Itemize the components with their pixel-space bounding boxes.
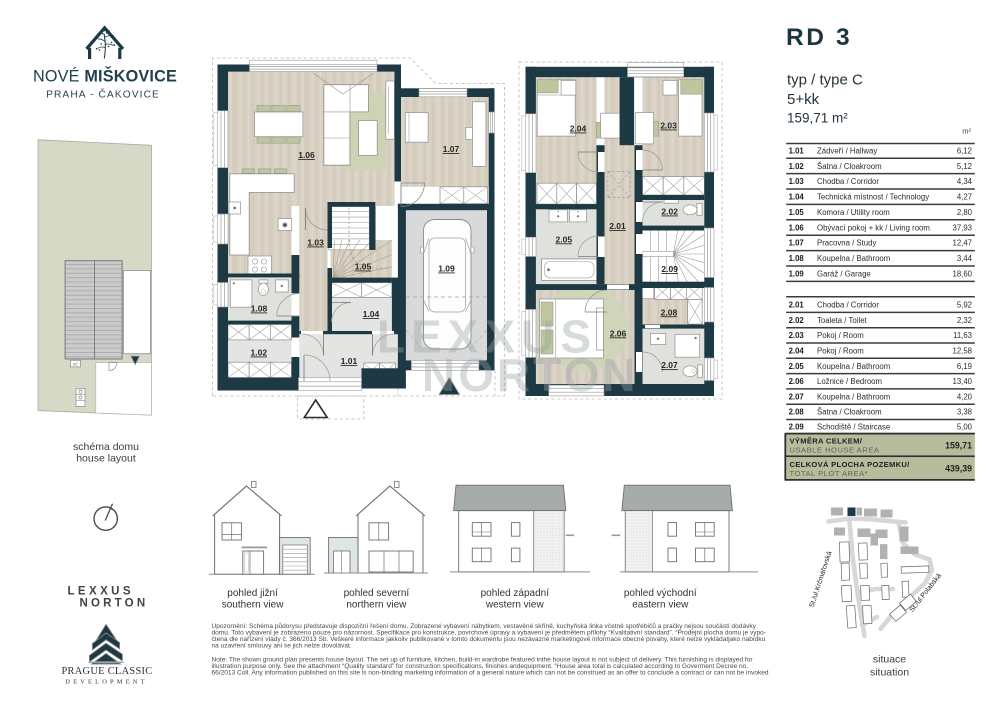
svg-text:typ / type C: typ / type C	[787, 72, 863, 89]
svg-text:Technická místnost / Technolog: Technická místnost / Technology	[817, 193, 929, 202]
svg-text:Toaleta / Toilet: Toaleta / Toilet	[817, 316, 868, 325]
svg-text:2,80: 2,80	[957, 208, 973, 217]
svg-text:Koupelna / Bathroom: Koupelna / Bathroom	[817, 362, 890, 371]
svg-text:5,00: 5,00	[957, 422, 973, 431]
svg-text:5,92: 5,92	[957, 300, 972, 309]
svg-text:66/2013 Coll. Any information: 66/2013 Coll. Any information published …	[212, 669, 769, 676]
svg-text:eastern view: eastern view	[632, 600, 689, 611]
svg-text:NORTON: NORTON	[422, 349, 639, 401]
svg-text:Garáž / Garage: Garáž / Garage	[817, 270, 871, 279]
svg-text:18,60: 18,60	[952, 270, 972, 279]
svg-text:4,34: 4,34	[957, 177, 973, 186]
svg-text:2,32: 2,32	[957, 316, 972, 325]
svg-text:2.04: 2.04	[789, 346, 805, 355]
svg-text:Šatna / Cloakroom: Šatna / Cloakroom	[817, 162, 882, 171]
svg-text:2.02: 2.02	[789, 316, 805, 325]
svg-text:3,38: 3,38	[957, 408, 972, 417]
svg-text:pohled jižní: pohled jižní	[227, 588, 278, 599]
svg-text:pohled severní: pohled severní	[344, 588, 410, 599]
svg-text:USABLE HOUSE AREA: USABLE HOUSE AREA	[790, 446, 880, 455]
svg-text:2.03: 2.03	[660, 121, 677, 131]
svg-text:159,71: 159,71	[945, 441, 972, 451]
svg-text:CELKOVÁ PLOCHA POZEMKU/: CELKOVÁ PLOCHA POZEMKU/	[790, 460, 911, 469]
svg-text:5,12: 5,12	[957, 162, 972, 171]
svg-text:Pokoj / Room: Pokoj / Room	[817, 346, 864, 355]
svg-text:Obývací pokoj + kk / Living ro: Obývací pokoj + kk / Living room	[817, 223, 930, 232]
svg-text:2.01: 2.01	[609, 221, 626, 231]
svg-text:1.02: 1.02	[789, 162, 805, 171]
svg-text:4,20: 4,20	[957, 392, 973, 401]
svg-text:TOTAL PLOT AREA*: TOTAL PLOT AREA*	[790, 469, 869, 478]
svg-text:2.01: 2.01	[789, 300, 805, 309]
svg-text:northern view: northern view	[346, 600, 407, 611]
svg-text:1.02: 1.02	[251, 348, 268, 358]
svg-text:DEVELOPMENT: DEVELOPMENT	[65, 679, 147, 686]
svg-text:2.07: 2.07	[789, 392, 804, 401]
svg-text:Chodba / Corridor: Chodba / Corridor	[817, 300, 879, 309]
svg-text:house layout: house layout	[76, 453, 136, 465]
svg-text:2.05: 2.05	[556, 234, 573, 244]
svg-text:2.06: 2.06	[610, 328, 627, 338]
svg-text:na uzavření smlouvy ani se jic: na uzavření smlouvy ani se jich nelze do…	[212, 643, 352, 650]
svg-text:2.03: 2.03	[789, 331, 805, 340]
svg-text:m²: m²	[962, 127, 971, 136]
svg-text:13,40: 13,40	[952, 377, 972, 386]
svg-text:Ložnice / Bedroom: Ložnice / Bedroom	[817, 377, 882, 386]
svg-text:Šatna / Cloakroom: Šatna / Cloakroom	[817, 408, 882, 417]
svg-text:12,47: 12,47	[952, 239, 972, 248]
svg-text:1.03: 1.03	[307, 238, 324, 248]
svg-text:1.05: 1.05	[355, 262, 372, 272]
svg-text:Koupelna / Bathroom: Koupelna / Bathroom	[817, 254, 890, 263]
svg-text:2.04: 2.04	[570, 124, 587, 134]
svg-text:Chodba / Corridor: Chodba / Corridor	[817, 177, 879, 186]
svg-text:RD 3: RD 3	[786, 24, 852, 51]
svg-text:PRAGUE CLASSIC: PRAGUE CLASSIC	[61, 666, 152, 677]
svg-text:1.01: 1.01	[789, 147, 805, 156]
svg-text:2.09: 2.09	[661, 264, 678, 274]
svg-text:1.09: 1.09	[438, 264, 455, 274]
svg-text:situation: situation	[870, 667, 909, 679]
svg-text:2.06: 2.06	[789, 377, 805, 386]
svg-text:schéma domu: schéma domu	[73, 441, 139, 453]
svg-text:western view: western view	[485, 600, 545, 611]
svg-text:Pracovna / Study: Pracovna / Study	[817, 239, 876, 248]
svg-text:2.02: 2.02	[661, 207, 678, 217]
svg-text:6,12: 6,12	[957, 147, 972, 156]
svg-text:1.07: 1.07	[443, 144, 460, 154]
svg-text:2.09: 2.09	[789, 422, 805, 431]
svg-text:159,71 m²: 159,71 m²	[787, 111, 848, 126]
svg-text:Pokoj / Room: Pokoj / Room	[817, 331, 864, 340]
svg-text:Koupelna / Bathroom: Koupelna / Bathroom	[817, 392, 890, 401]
svg-text:1.07: 1.07	[789, 239, 804, 248]
svg-text:6,19: 6,19	[957, 362, 972, 371]
svg-text:1.09: 1.09	[789, 270, 805, 279]
svg-text:NOVÉ MIŠKOVICE: NOVÉ MIŠKOVICE	[33, 67, 177, 86]
svg-text:HČ: HČ	[73, 362, 79, 367]
svg-text:3,44: 3,44	[957, 254, 973, 263]
svg-text:NORTON: NORTON	[80, 598, 149, 610]
svg-text:Zádveří / Hallway: Zádveří / Hallway	[817, 147, 877, 156]
svg-text:2.07: 2.07	[661, 360, 678, 370]
svg-text:439,39: 439,39	[945, 464, 972, 474]
svg-text:1.01: 1.01	[341, 356, 358, 366]
svg-text:1.06: 1.06	[298, 150, 315, 160]
svg-text:4,27: 4,27	[957, 193, 972, 202]
svg-text:PRAHA - ČAKOVICE: PRAHA - ČAKOVICE	[46, 88, 160, 101]
svg-text:37,93: 37,93	[952, 223, 972, 232]
svg-text:2.08: 2.08	[661, 307, 678, 317]
svg-text:southern view: southern view	[222, 600, 284, 611]
svg-text:LEXXUS: LEXXUS	[68, 586, 134, 598]
svg-text:1.05: 1.05	[789, 208, 805, 217]
svg-text:1.03: 1.03	[789, 177, 805, 186]
svg-text:2.08: 2.08	[789, 408, 805, 417]
svg-text:VÝMĚRA CELKEM/: VÝMĚRA CELKEM/	[790, 437, 863, 446]
svg-text:Komora / Utility room: Komora / Utility room	[817, 208, 890, 217]
svg-text:pohled východní: pohled východní	[624, 588, 697, 599]
svg-text:2.05: 2.05	[789, 362, 805, 371]
svg-text:Schodiště / Staircase: Schodiště / Staircase	[817, 422, 890, 431]
svg-text:situace: situace	[873, 654, 906, 666]
svg-text:1.06: 1.06	[789, 223, 805, 232]
svg-text:5+kk: 5+kk	[787, 91, 820, 108]
svg-text:1.04: 1.04	[789, 193, 805, 202]
svg-text:pohled západní: pohled západní	[481, 588, 550, 599]
svg-text:11,63: 11,63	[953, 331, 972, 340]
svg-text:12,58: 12,58	[952, 346, 972, 355]
svg-text:✱: ✱	[282, 222, 288, 230]
svg-text:1.08: 1.08	[789, 254, 805, 263]
svg-text:1.08: 1.08	[251, 304, 268, 314]
